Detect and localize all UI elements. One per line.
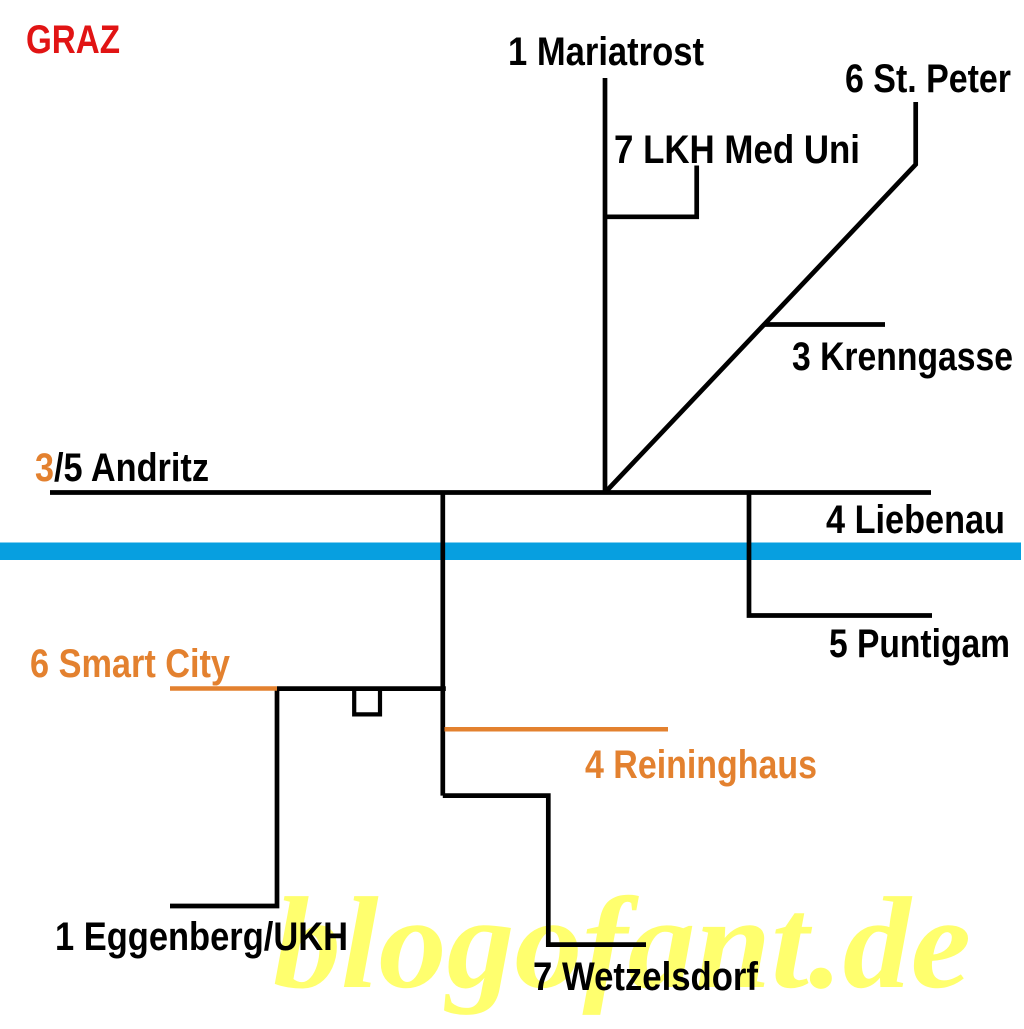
svg-text:6 Smart City: 6 Smart City bbox=[30, 642, 231, 686]
svg-text:7 LKH Med Uni: 7 LKH Med Uni bbox=[614, 128, 860, 172]
svg-text:6 St. Peter: 6 St. Peter bbox=[845, 57, 1011, 101]
svg-text:4 Liebenau: 4 Liebenau bbox=[826, 498, 1005, 542]
svg-text:3: 3 bbox=[35, 446, 54, 490]
svg-text:3 Krenngasse: 3 Krenngasse bbox=[792, 335, 1013, 379]
svg-text:7 Wetzelsdorf: 7 Wetzelsdorf bbox=[533, 955, 759, 999]
svg-text:5 Puntigam: 5 Puntigam bbox=[829, 622, 1010, 666]
svg-text:1 Mariatrost: 1 Mariatrost bbox=[508, 30, 704, 74]
svg-text:4 Reininghaus: 4 Reininghaus bbox=[585, 743, 817, 787]
svg-text:/5 Andritz: /5 Andritz bbox=[54, 446, 209, 490]
svg-text:1 Eggenberg/UKH: 1 Eggenberg/UKH bbox=[55, 915, 348, 959]
svg-text:GRAZ: GRAZ bbox=[26, 18, 120, 62]
